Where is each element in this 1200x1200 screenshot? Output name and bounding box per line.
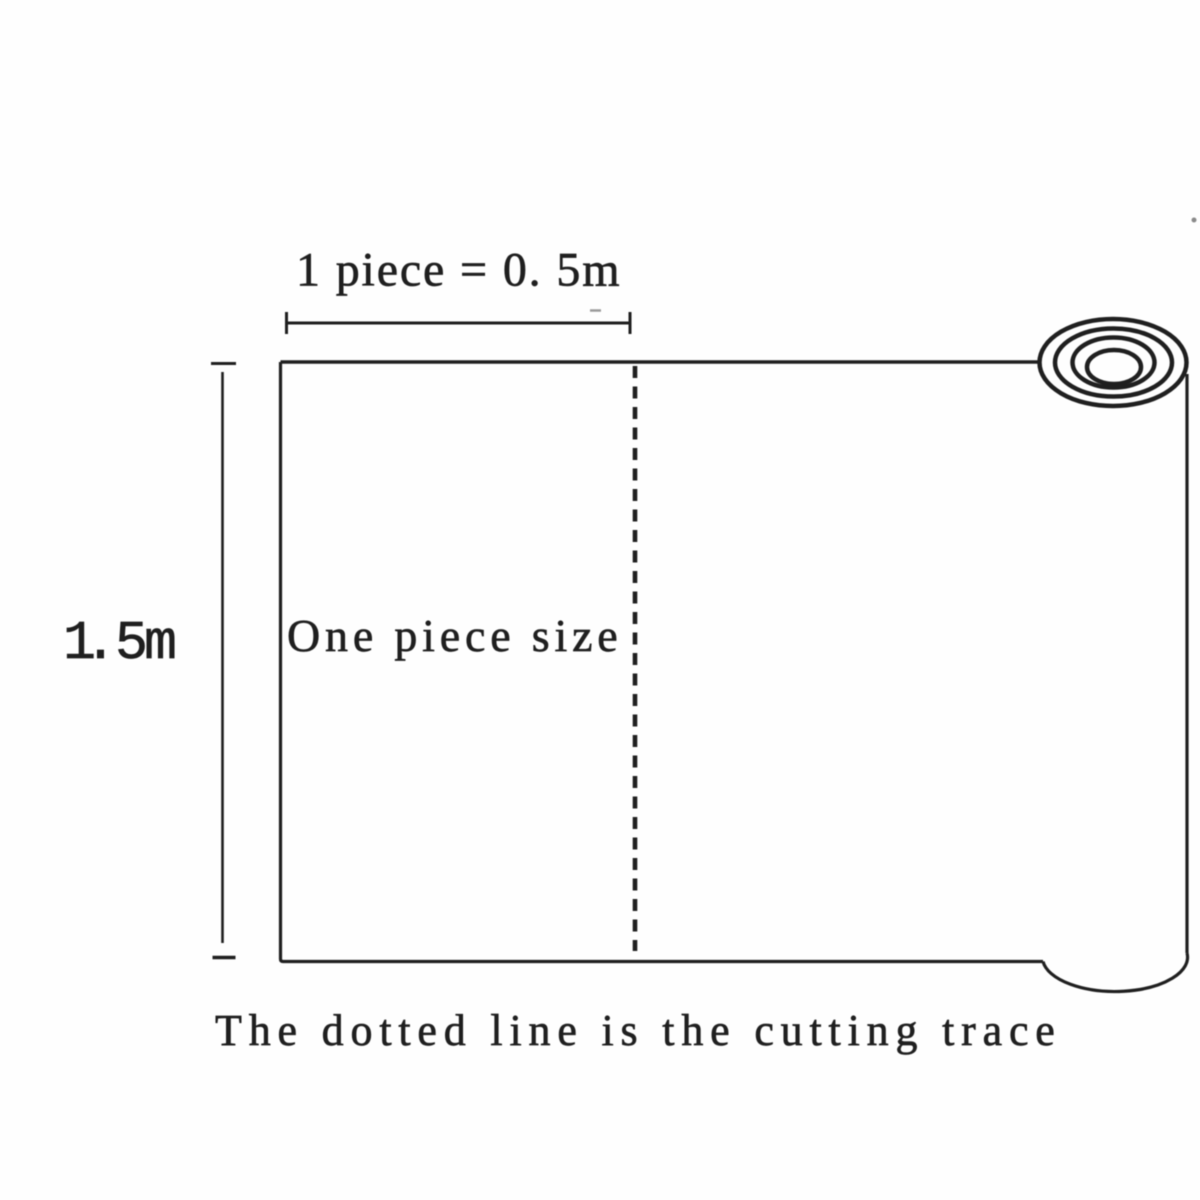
svg-text:One piece size: One piece size	[287, 610, 623, 661]
svg-text:1 piece = 0. 5m: 1 piece = 0. 5m	[296, 244, 621, 297]
svg-text:The dotted line is the cutting: The dotted line is the cutting trace	[215, 1006, 1062, 1055]
svg-text:1.5m: 1.5m	[63, 612, 177, 675]
